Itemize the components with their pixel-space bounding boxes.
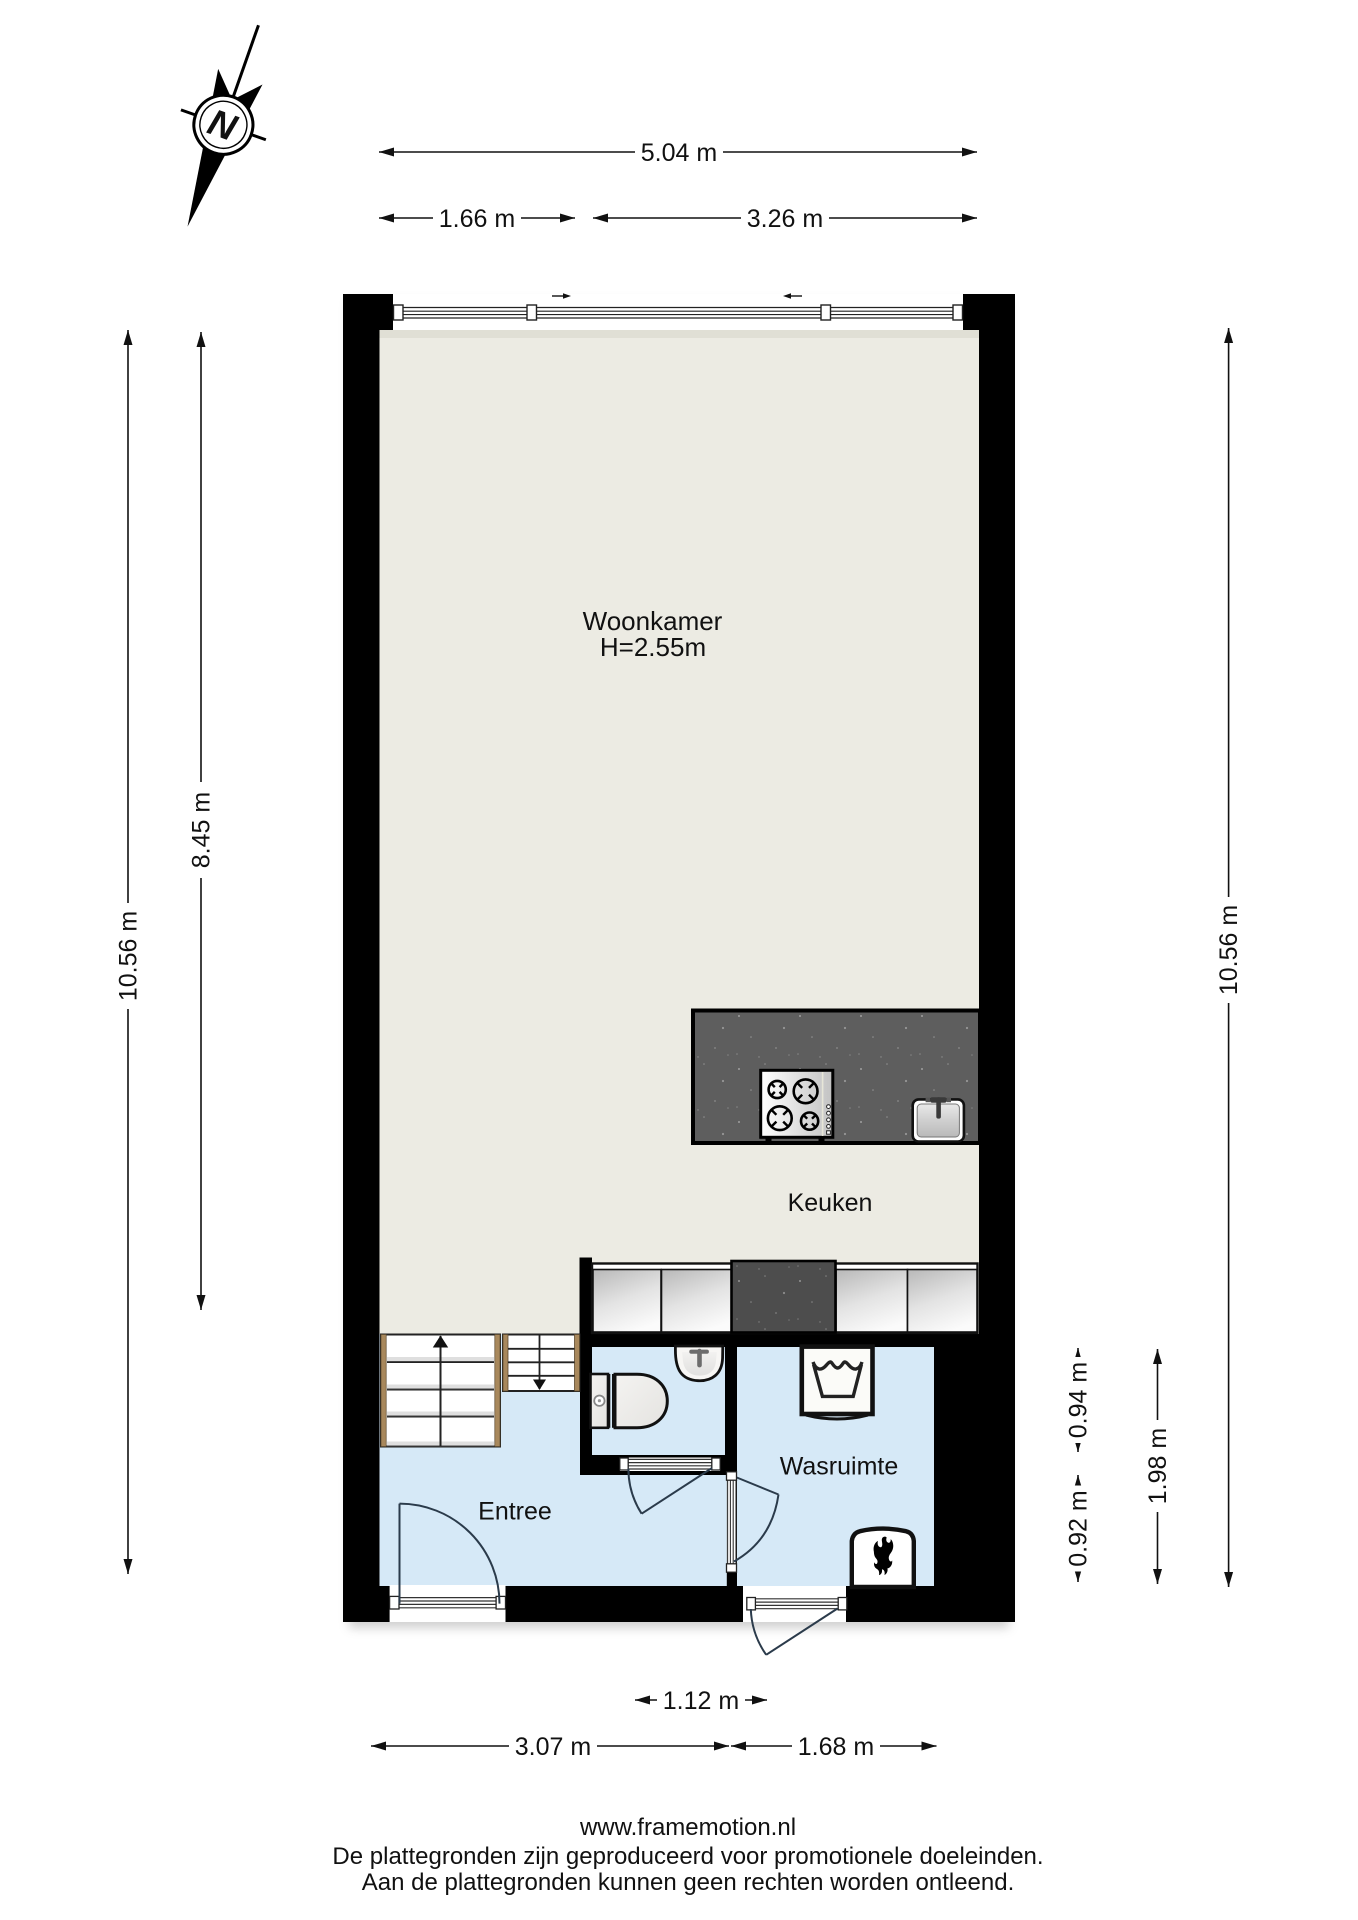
svg-text:Aan de plattegronden kunnen ge: Aan de plattegronden kunnen geen rechten… [362, 1869, 1015, 1896]
svg-text:Wasruimte: Wasruimte [780, 1453, 899, 1481]
svg-text:H=2.55m: H=2.55m [600, 632, 706, 662]
svg-text:De plattegronden zijn geproduc: De plattegronden zijn geproduceerd voor … [332, 1843, 1043, 1870]
svg-text:10.56 m: 10.56 m [115, 911, 143, 1001]
svg-text:1.68 m: 1.68 m [798, 1733, 874, 1761]
svg-text:0.94 m: 0.94 m [1065, 1362, 1093, 1438]
svg-text:1.12 m: 1.12 m [663, 1687, 739, 1715]
svg-text:3.26 m: 3.26 m [747, 205, 823, 233]
svg-text:5.04 m: 5.04 m [641, 139, 717, 167]
svg-text:3.07 m: 3.07 m [515, 1733, 591, 1761]
svg-text:10.56 m: 10.56 m [1215, 905, 1243, 995]
svg-text:8.45 m: 8.45 m [188, 792, 216, 868]
svg-text:Keuken: Keuken [788, 1189, 873, 1217]
svg-text:Entree: Entree [478, 1498, 552, 1526]
svg-text:0.92 m: 0.92 m [1065, 1490, 1093, 1566]
svg-text:www.framemotion.nl: www.framemotion.nl [579, 1814, 796, 1841]
svg-text:1.66 m: 1.66 m [439, 205, 515, 233]
svg-text:1.98 m: 1.98 m [1144, 1428, 1172, 1504]
